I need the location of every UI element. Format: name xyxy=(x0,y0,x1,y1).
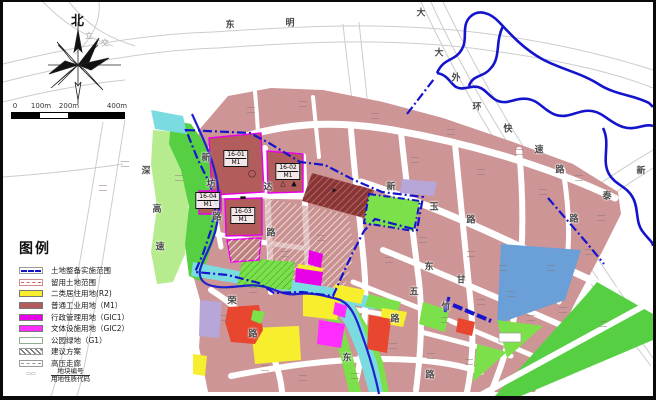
parcel-code-mark xyxy=(299,375,307,381)
parcel-code-mark xyxy=(527,315,535,321)
plot-symbol: ▲ xyxy=(291,181,296,188)
legend-item-1: 留用土地范围 xyxy=(19,277,187,289)
parcel-code-mark xyxy=(221,315,229,321)
legend-item-2: 二类居住用地(R2) xyxy=(19,288,187,300)
legend-swatch xyxy=(19,302,43,309)
legend-label: 土地整备实施范围 xyxy=(51,265,111,276)
parcel-code-mark xyxy=(249,287,257,293)
legend: 图例 土地整备实施范围留用土地范围二类居住用地(R2)普通工业用地（M1）行政管… xyxy=(19,238,187,381)
plot-label-16-01: 16-01M1 xyxy=(223,150,248,167)
parcel-code-mark xyxy=(351,373,359,379)
plot-symbol: ➤ xyxy=(331,188,337,195)
parcel-code-mark xyxy=(299,101,307,107)
planning-map: 北 0 100m 200m 400m 东明大大外环快速路新泰路深高速新坊路达路新… xyxy=(0,0,656,400)
parcel-code-mark xyxy=(247,107,255,113)
plot-label-16-03: 16-03M1 xyxy=(230,207,255,224)
legend-item-9: ▭▭地块编号用地性质代码 xyxy=(19,369,187,381)
parcel-code-mark xyxy=(385,257,393,263)
parcel-code-mark xyxy=(539,189,547,195)
legend-item-6: 公园绿地（G1） xyxy=(19,335,187,347)
legend-swatch xyxy=(19,360,43,367)
scale-bar-rule xyxy=(11,112,125,119)
legend-item-5: 文体设施用地（GIC2） xyxy=(19,323,187,335)
parcel-code-mark xyxy=(599,321,607,327)
legend-label: 二类居住用地(R2) xyxy=(51,288,112,299)
parcel-code-mark xyxy=(547,265,555,271)
parcel-code-mark xyxy=(515,149,523,155)
parcel-code-mark xyxy=(175,175,183,181)
plot-label-16-02: 16-02M1 xyxy=(275,163,300,180)
parcel-code-mark xyxy=(419,237,427,243)
legend-item-8: 高压走廊 xyxy=(19,358,187,370)
legend-swatch xyxy=(19,325,43,332)
scale-bar: 0 100m 200m 400m xyxy=(11,102,125,124)
parcel-code-mark xyxy=(507,291,515,297)
parcel-code-mark xyxy=(477,299,485,305)
parcel-code-mark xyxy=(281,251,289,257)
parcel-code-mark xyxy=(477,169,485,175)
plot-symbol: ▬ xyxy=(240,195,247,202)
parcel-code-mark xyxy=(389,343,397,349)
parcel-code-mark xyxy=(261,365,269,371)
legend-item-4: 行政管理用地（GIC1） xyxy=(19,311,187,323)
legend-label: 文体设施用地（GIC2） xyxy=(51,323,129,334)
parcel-code-mark xyxy=(317,235,325,241)
plot-symbol: △ xyxy=(280,181,285,188)
plot-label-16-04: 16-04M1 xyxy=(195,192,220,209)
parcel-code-mark xyxy=(467,251,475,257)
legend-label: 公园绿地（G1） xyxy=(51,335,107,346)
legend-item-3: 普通工业用地（M1） xyxy=(19,300,187,312)
parcel-code-mark xyxy=(447,129,455,135)
legend-swatch: ▭▭ xyxy=(19,372,43,379)
legend-title: 图例 xyxy=(19,238,187,258)
legend-swatch xyxy=(19,267,43,274)
legend-label: 行政管理用地（GIC1） xyxy=(51,312,129,323)
legend-item-7: 建议方案 xyxy=(19,346,187,358)
legend-item-0: 土地整备实施范围 xyxy=(19,265,187,277)
parcel-code-mark xyxy=(411,157,419,163)
parcel-code-mark xyxy=(597,215,605,221)
legend-swatch xyxy=(19,348,43,355)
parcel-code-mark xyxy=(559,307,567,313)
parcel-code-mark xyxy=(499,265,507,271)
legend-swatch xyxy=(19,314,43,321)
legend-label: 地块编号用地性质代码 xyxy=(51,368,90,383)
scale-bar-ticks: 0 100m 200m 400m xyxy=(11,102,125,112)
legend-label: 普通工业用地（M1） xyxy=(51,300,122,311)
parcel-code-mark xyxy=(441,317,449,323)
parcel-code-mark xyxy=(575,175,583,181)
parcel-code-mark xyxy=(99,185,107,191)
north-label: 北 xyxy=(71,10,84,29)
legend-label: 建议方案 xyxy=(51,346,81,357)
parcel-code-mark xyxy=(121,161,129,167)
plot-symbol: ◯ xyxy=(248,171,256,178)
parcel-code-mark xyxy=(585,249,593,255)
legend-swatch xyxy=(19,337,43,344)
parcel-code-mark xyxy=(371,113,379,119)
legend-swatch xyxy=(19,290,43,297)
legend-label: 留用土地范围 xyxy=(51,277,96,288)
parcel-code-mark xyxy=(427,353,435,359)
parcel-code-mark xyxy=(465,359,473,365)
legend-swatch xyxy=(19,279,43,286)
